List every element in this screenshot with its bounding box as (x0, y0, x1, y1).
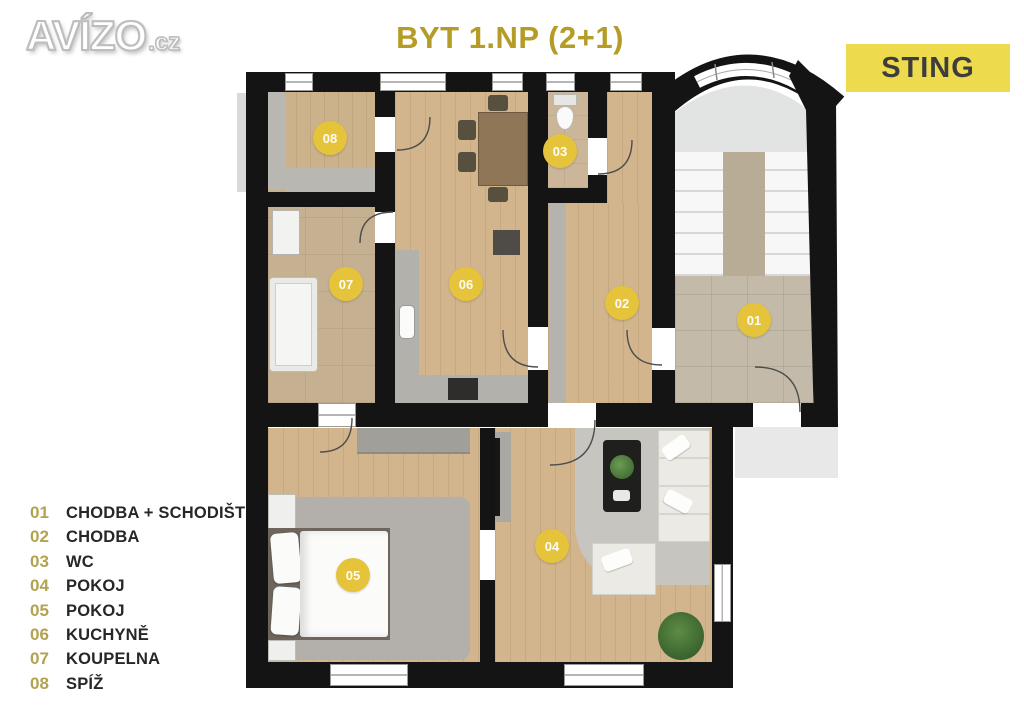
bay-window-tick-2 (772, 62, 774, 78)
wall-08-07 (246, 192, 395, 207)
legend-row-03: 03WC (30, 550, 256, 574)
room-marker-04: 04 (535, 529, 569, 563)
pantry-shelf-left (268, 92, 286, 190)
floor-plant (658, 612, 704, 660)
bathtub (269, 277, 318, 372)
room-legend: 01CHODBA + SCHODIŠTĚ 02CHODBA 03WC 04POK… (30, 501, 256, 696)
door-06-07 (375, 212, 395, 243)
door-01-exterior (753, 403, 801, 427)
stairs-right-flight (765, 150, 813, 276)
floor-room-02-top (607, 92, 652, 203)
dining-chair-left-2 (458, 152, 476, 172)
window-bottom-04 (564, 664, 644, 686)
sting-badge-label: STING (881, 52, 975, 85)
room-marker-08: 08 (313, 121, 347, 155)
room-marker-07: 07 (329, 267, 363, 301)
bay-arch-window (697, 69, 799, 84)
room-marker-08-number: 08 (323, 131, 337, 146)
toilet-tank (553, 94, 577, 106)
kitchen-appliance (493, 230, 520, 255)
opening-02-04 (548, 403, 596, 427)
sting-badge: STING (846, 44, 1010, 92)
door-07-05 (318, 403, 356, 427)
bed-pillow-2 (270, 586, 301, 636)
avizo-logo: AVÍZO .cz (26, 12, 180, 60)
window-top-08 (285, 73, 313, 91)
bay-window-tick-1 (715, 64, 717, 80)
pantry-shelf-bottom (286, 168, 375, 192)
door-wc-02 (588, 138, 607, 175)
room-marker-06: 06 (449, 267, 483, 301)
door-02-01 (652, 328, 675, 370)
room-marker-02: 02 (605, 286, 639, 320)
nightstand-bottom (268, 640, 296, 661)
wall-bottom (246, 662, 733, 688)
table-plant (610, 455, 634, 479)
legend-label-07: KOUPELNA (66, 647, 160, 671)
washing-machine (272, 210, 300, 255)
door-08-06 (375, 117, 395, 152)
window-top-06b (492, 73, 523, 91)
room-marker-07-number: 07 (339, 277, 353, 292)
legend-number-06: 06 (30, 623, 66, 647)
legend-label-06: KUCHYNĚ (66, 623, 149, 647)
bedroom-wardrobe (357, 428, 470, 454)
logo-text: AVÍZO (26, 12, 146, 60)
stairs-center-ramp (723, 150, 765, 276)
window-right-04 (714, 564, 731, 622)
legend-row-04: 04POKOJ (30, 574, 256, 598)
legend-number-04: 04 (30, 574, 66, 598)
legend-label-02: CHODBA (66, 525, 140, 549)
logo-suffix: .cz (148, 29, 180, 57)
room-marker-04-number: 04 (545, 539, 559, 554)
room-marker-06-number: 06 (459, 277, 473, 292)
window-bottom-05 (330, 664, 408, 686)
bay-arch-window-line (697, 69, 799, 84)
gap-05-04 (480, 530, 495, 580)
window-top-wc (546, 73, 575, 91)
legend-number-02: 02 (30, 525, 66, 549)
legend-row-07: 07KOUPELNA (30, 647, 256, 671)
legend-label-01: CHODBA + SCHODIŠTĚ (66, 501, 256, 525)
legend-number-03: 03 (30, 550, 66, 574)
room-marker-03: 03 (543, 134, 577, 168)
room-marker-01: 01 (737, 303, 771, 337)
legend-label-05: POKOJ (66, 599, 125, 623)
room-marker-05-number: 05 (346, 568, 360, 583)
legend-number-07: 07 (30, 647, 66, 671)
legend-label-04: POKOJ (66, 574, 125, 598)
legend-label-03: WC (66, 550, 94, 574)
wall-06-02 (528, 72, 548, 427)
stairs-left-flight (675, 150, 723, 276)
dining-chair-left-1 (458, 120, 476, 140)
wall-right-lower (712, 418, 733, 688)
room-marker-02-number: 02 (615, 296, 629, 311)
window-top-02 (610, 73, 642, 91)
wall-02-01 (652, 72, 675, 427)
hall-wardrobe (549, 200, 566, 403)
door-06-02 (528, 327, 548, 370)
bay-arch-wall (662, 67, 836, 106)
legend-row-06: 06KUCHYNĚ (30, 623, 256, 647)
legend-row-08: 08SPÍŽ (30, 672, 256, 696)
wall-wc-bottom (528, 188, 607, 203)
dining-table (478, 112, 528, 186)
bed-pillow-1 (270, 532, 302, 584)
floor-plan-page: AVÍZO .cz BYT 1.NP (2+1) STING (0, 0, 1024, 724)
room-marker-03-number: 03 (553, 144, 567, 159)
room-marker-01-number: 01 (747, 313, 761, 328)
legend-row-01: 01CHODBA + SCHODIŠTĚ (30, 501, 256, 525)
stove (448, 378, 478, 400)
dining-chair-bottom (488, 187, 508, 202)
room-marker-05: 05 (336, 558, 370, 592)
exterior-paving (735, 418, 838, 478)
kitchen-sink (399, 305, 415, 339)
page-title: BYT 1.NP (2+1) (320, 20, 700, 56)
table-dish (613, 490, 630, 501)
window-top-06 (380, 73, 446, 91)
nightstand-top (268, 494, 296, 530)
legend-number-01: 01 (30, 501, 66, 525)
wall-left (246, 72, 268, 688)
dining-chair-top (488, 95, 508, 111)
legend-number-08: 08 (30, 672, 66, 696)
legend-row-02: 02CHODBA (30, 525, 256, 549)
legend-number-05: 05 (30, 599, 66, 623)
legend-row-05: 05POKOJ (30, 599, 256, 623)
legend-label-08: SPÍŽ (66, 672, 103, 696)
